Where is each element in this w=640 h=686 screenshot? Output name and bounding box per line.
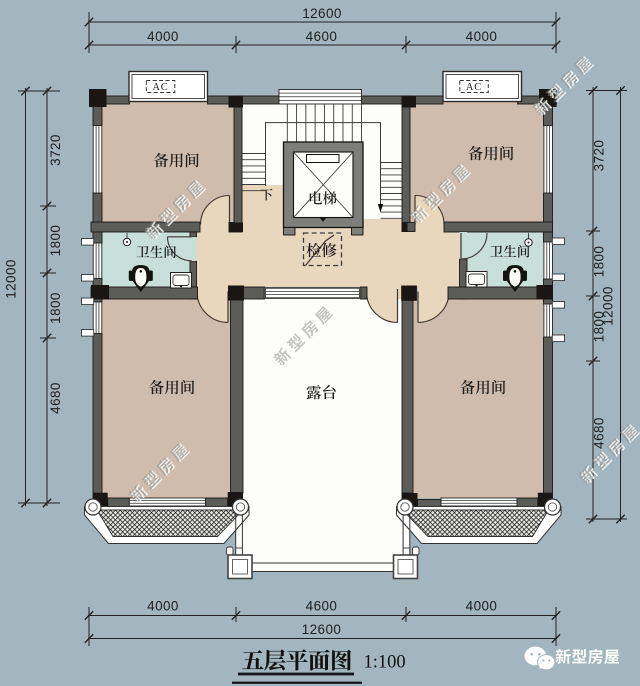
svg-text:4600: 4600: [306, 599, 338, 614]
svg-text:4000: 4000: [147, 29, 179, 44]
svg-text:1:100: 1:100: [364, 653, 406, 673]
svg-text:AC: AC: [466, 82, 482, 93]
svg-text:4600: 4600: [306, 29, 338, 44]
svg-text:1800: 1800: [592, 246, 607, 278]
svg-text:1800: 1800: [48, 292, 63, 324]
svg-text:1800: 1800: [48, 225, 63, 257]
svg-text:4680: 4680: [592, 417, 607, 449]
svg-text:12000: 12000: [601, 286, 616, 326]
svg-text:12000: 12000: [4, 259, 19, 299]
svg-text:3720: 3720: [48, 134, 63, 166]
svg-text:4000: 4000: [147, 599, 179, 614]
svg-text:12600: 12600: [302, 622, 342, 637]
svg-text:3720: 3720: [592, 140, 607, 172]
svg-text:4680: 4680: [48, 382, 63, 414]
svg-text:4000: 4000: [466, 599, 498, 614]
svg-text:12600: 12600: [302, 6, 342, 21]
svg-text:AC: AC: [152, 82, 168, 93]
svg-text:4000: 4000: [466, 29, 498, 44]
